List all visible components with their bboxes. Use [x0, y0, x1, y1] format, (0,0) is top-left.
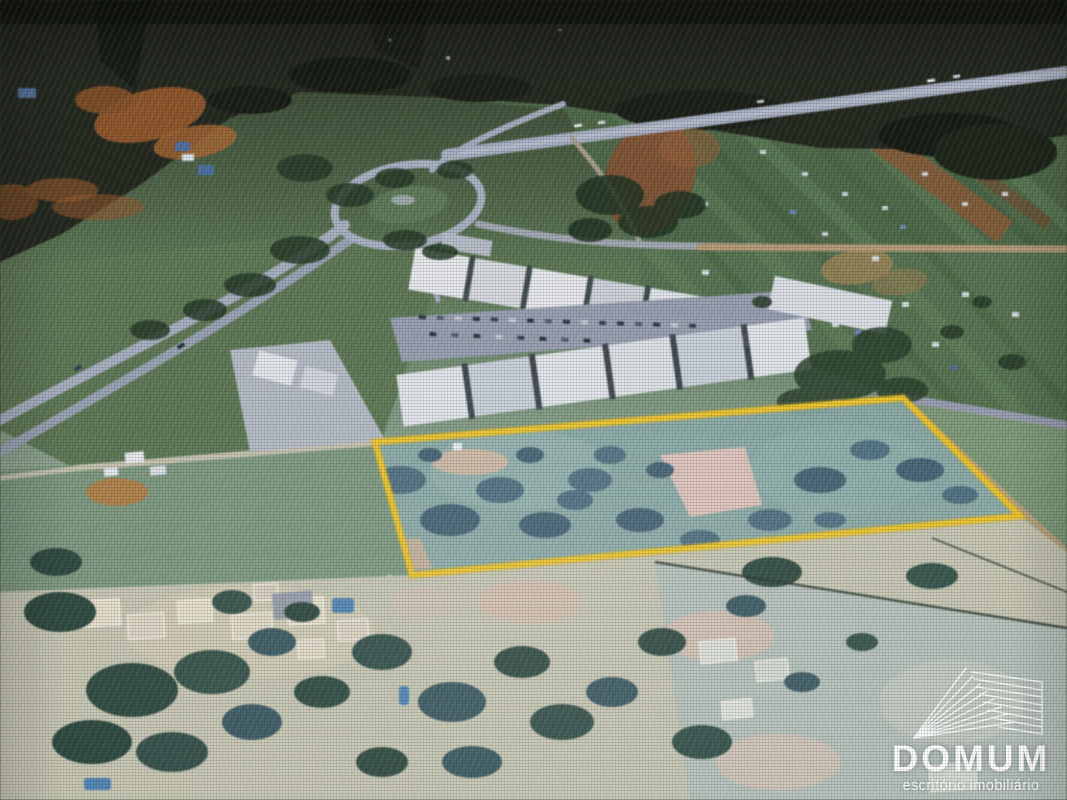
agency-watermark: DOMUM escritório imobiliário	[882, 660, 1060, 794]
satellite-photo: DOMUM escritório imobiliário	[0, 0, 1067, 800]
agency-tagline: escritório imobiliário	[882, 778, 1060, 794]
domum-hatched-pyramid-icon	[896, 660, 1046, 744]
agency-name: DOMUM	[882, 740, 1060, 777]
